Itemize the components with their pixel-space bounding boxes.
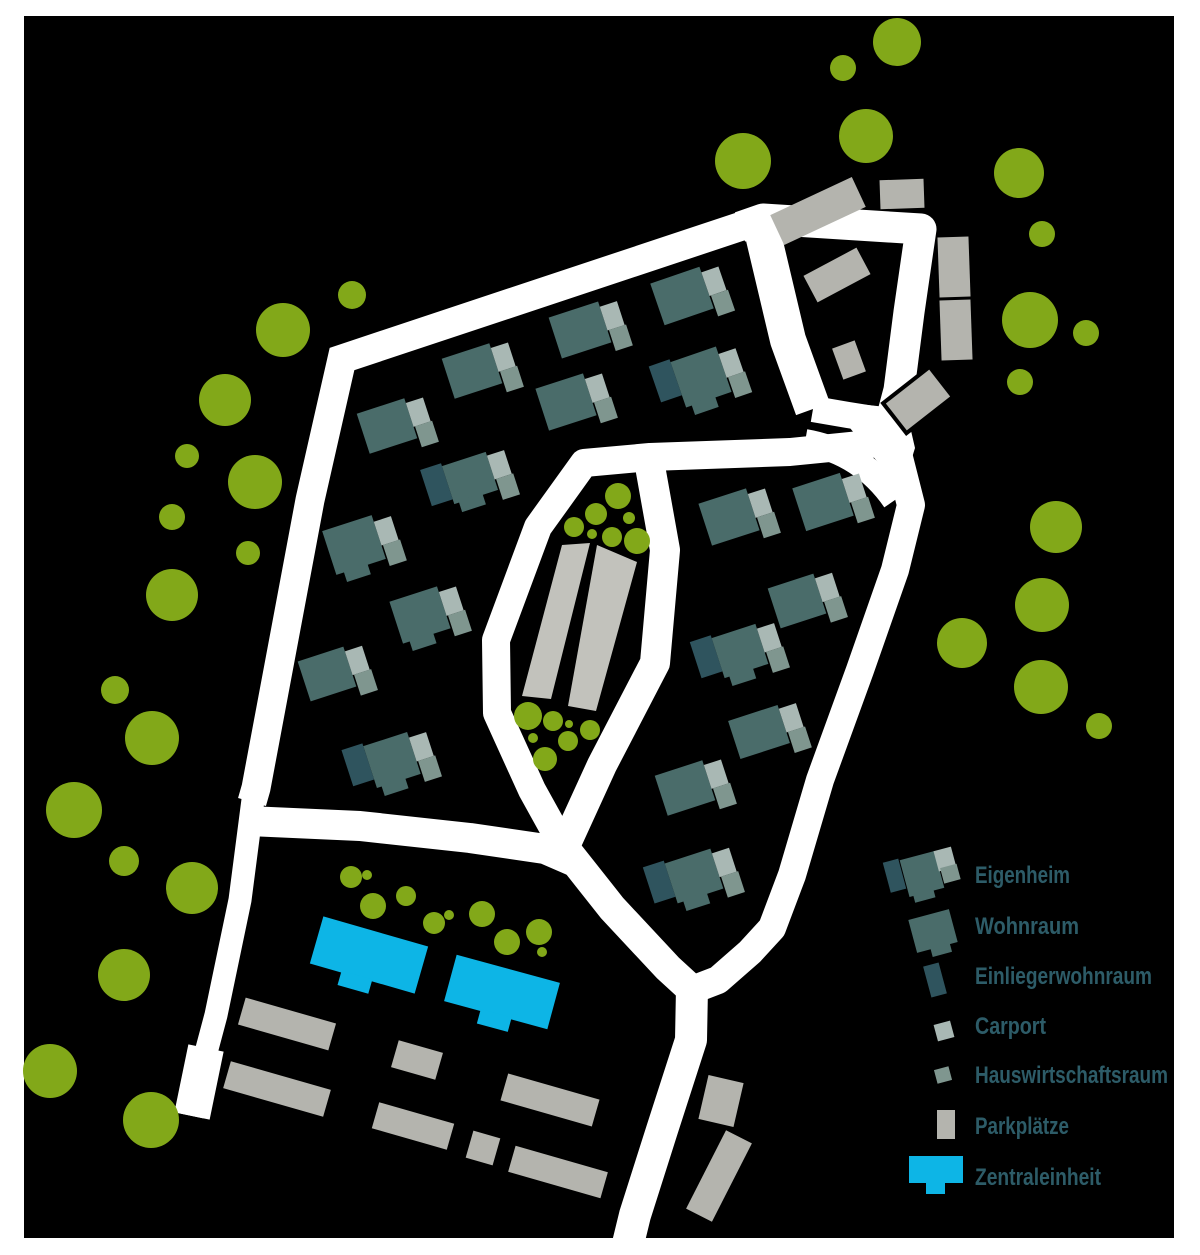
svg-text:Parkplätze: Parkplätze xyxy=(975,1113,1069,1140)
svg-text:Hauswirtschaftsraum: Hauswirtschaftsraum xyxy=(975,1062,1168,1089)
svg-text:Zentraleinheit: Zentraleinheit xyxy=(975,1164,1101,1191)
svg-text:Carport: Carport xyxy=(975,1013,1046,1040)
svg-text:Eigenheim: Eigenheim xyxy=(975,862,1070,889)
svg-text:Wohnraum: Wohnraum xyxy=(975,913,1079,940)
svg-text:Einliegerwohnraum: Einliegerwohnraum xyxy=(975,963,1152,990)
